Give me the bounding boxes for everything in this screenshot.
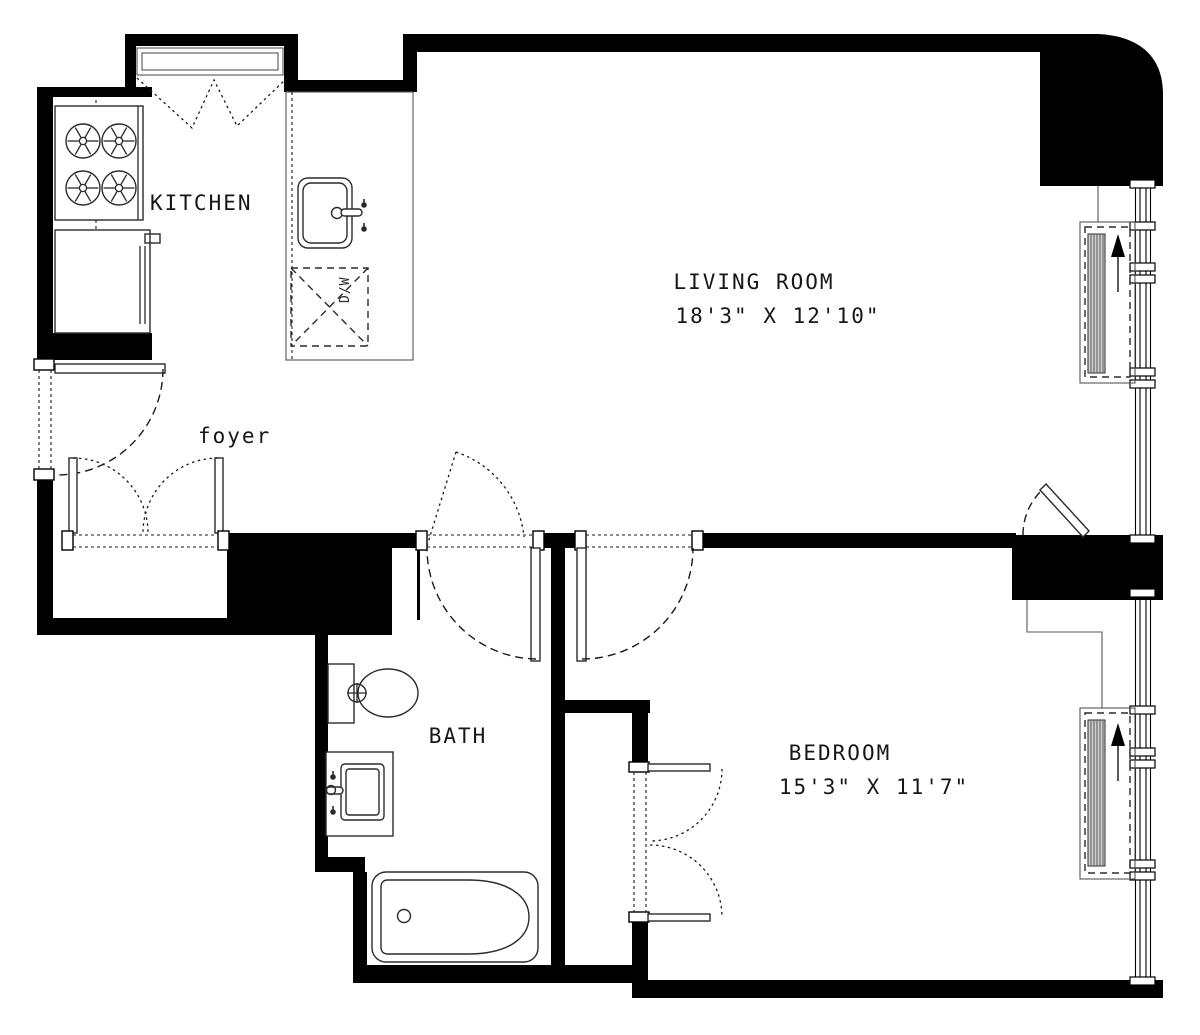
toilet [328, 664, 418, 723]
kitchen-stove [55, 106, 143, 220]
dishwasher: D/W [291, 268, 368, 346]
ac-unit-bedroom [1080, 708, 1135, 879]
living-room-dimensions: 18'3" X 12'10" [675, 304, 880, 328]
dishwasher-label: D/W [338, 277, 353, 303]
kitchen-sink [298, 178, 367, 248]
entry-foyer-area [34, 359, 229, 550]
bedroom-label: BEDROOM [789, 741, 892, 765]
kitchen-closet-shelf [137, 48, 283, 75]
divider-door [1023, 484, 1089, 537]
foyer-label: foyer [198, 424, 271, 448]
up-arrow-icon [1111, 723, 1125, 781]
bedroom-dimensions: 15'3" X 11'7" [779, 775, 969, 799]
bedroom-closet [629, 762, 722, 922]
floor-plan: D/W [0, 0, 1200, 1035]
foyer-closet-doors [62, 458, 229, 550]
kitchen-oven [55, 230, 160, 333]
bedroom-door [575, 531, 703, 661]
kitchen-label: KITCHEN [150, 191, 253, 215]
bath-label: BATH [429, 724, 488, 748]
bathroom-sink [326, 752, 393, 836]
hall-doors [416, 452, 1089, 661]
up-arrow-icon [1111, 234, 1125, 292]
living-room-label: LIVING ROOM [673, 270, 834, 294]
kitchen-closet-bifold-doors [137, 78, 287, 128]
floor-plan-page: D/W [0, 0, 1200, 1035]
bath-door [416, 452, 544, 661]
bathtub [372, 872, 538, 962]
ac-unit-living-room [1080, 222, 1135, 383]
walls [37, 34, 1163, 998]
